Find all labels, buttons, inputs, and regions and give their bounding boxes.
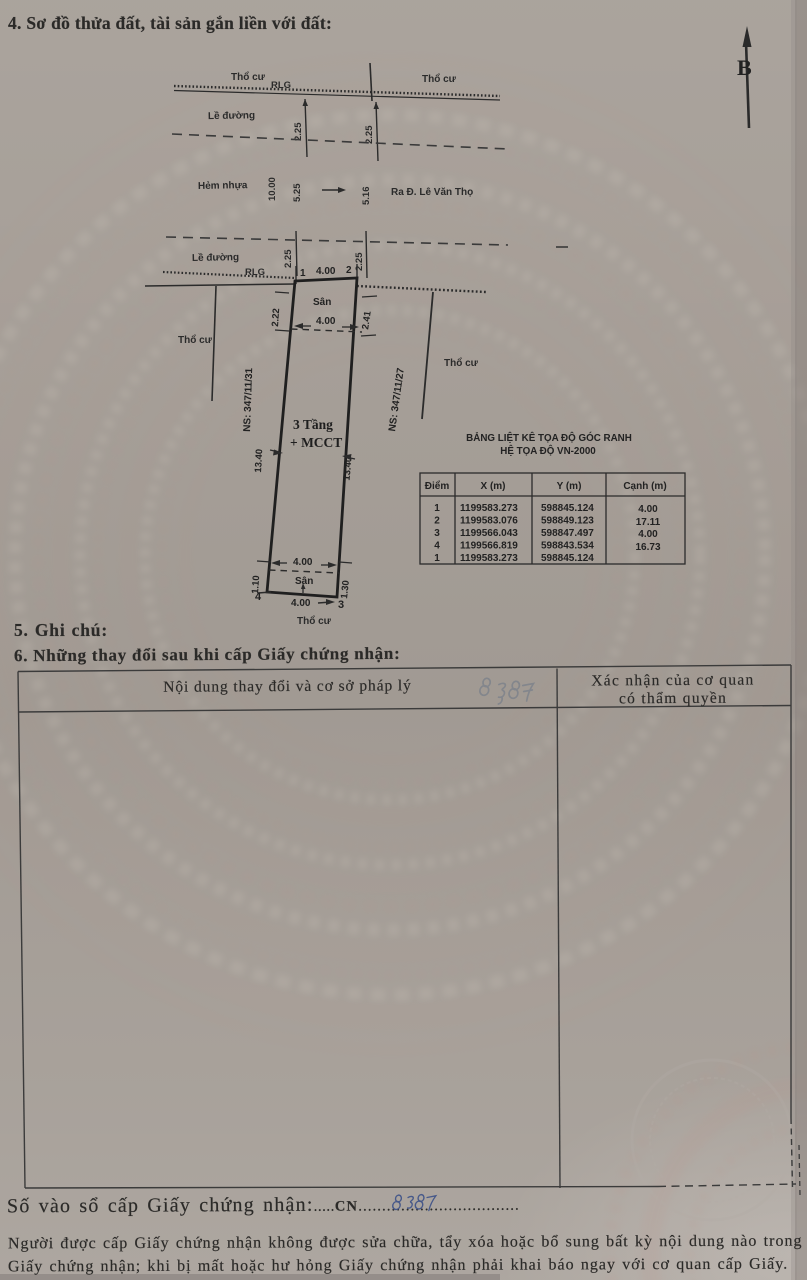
svg-text:2.41: 2.41 (360, 310, 374, 331)
svg-text:4: 4 (434, 541, 440, 552)
svg-text:2.25: 2.25 (364, 125, 375, 144)
svg-text:Thổ cư: Thổ cư (231, 71, 266, 83)
svg-text:1: 1 (300, 268, 306, 279)
svg-text:2: 2 (346, 265, 352, 276)
svg-text:Y (m): Y (m) (557, 481, 582, 492)
svg-text:1199583.273: 1199583.273 (460, 553, 518, 564)
svg-text:NS: 347/11/31: NS: 347/11/31 (242, 367, 255, 432)
svg-text:4.00: 4.00 (316, 266, 336, 277)
svg-text:4.00: 4.00 (638, 504, 658, 515)
svg-text:Thổ cư: Thổ cư (422, 73, 457, 85)
svg-text:598843.534: 598843.534 (541, 541, 594, 552)
svg-text:Lề đường: Lề đường (192, 251, 239, 264)
svg-text:17.11: 17.11 (636, 517, 661, 528)
svg-text:2.25: 2.25 (293, 122, 304, 141)
svg-text:Lề đường: Lề đường (208, 109, 255, 122)
svg-text:4: 4 (255, 591, 262, 603)
svg-text:Sân: Sân (295, 576, 313, 587)
svg-text:Hẻm nhựa: Hẻm nhựa (198, 180, 248, 192)
svg-text:4.00: 4.00 (638, 529, 658, 540)
svg-text:1199583.273: 1199583.273 (460, 503, 518, 514)
svg-text:Thổ cư: Thổ cư (178, 334, 213, 346)
svg-text:Thổ cư: Thổ cư (297, 615, 332, 627)
svg-text:RLG: RLG (271, 80, 291, 91)
svg-text:1199566.043: 1199566.043 (460, 528, 518, 539)
svg-text:3 Tầng: 3 Tầng (293, 417, 333, 432)
svg-text:3: 3 (434, 528, 440, 539)
svg-text:NS: 347/11/27: NS: 347/11/27 (387, 367, 407, 432)
svg-text:598845.124: 598845.124 (541, 553, 594, 564)
svg-text:1: 1 (434, 503, 440, 514)
svg-text:1199583.076: 1199583.076 (460, 516, 518, 527)
svg-text:2.25: 2.25 (283, 249, 294, 268)
svg-text:2: 2 (434, 516, 440, 527)
svg-text:BẢNG LIỆT KÊ TỌA ĐỘ GÓC RANH: BẢNG LIỆT KÊ TỌA ĐỘ GÓC RANH (466, 432, 632, 444)
svg-text:Thổ cư: Thổ cư (444, 357, 479, 369)
svg-text:1.30: 1.30 (339, 580, 352, 600)
svg-text:X (m): X (m) (481, 481, 506, 492)
svg-text:Cạnh (m): Cạnh (m) (623, 481, 666, 492)
svg-text:+ MCCT: + MCCT (290, 435, 342, 450)
svg-text:5.25: 5.25 (292, 183, 303, 202)
svg-text:Sân: Sân (313, 297, 331, 308)
svg-text:2.22: 2.22 (270, 308, 282, 327)
svg-text:1: 1 (434, 553, 440, 564)
svg-text:3: 3 (338, 599, 344, 611)
svg-text:5.16: 5.16 (361, 187, 372, 206)
svg-text:13.40: 13.40 (253, 449, 265, 473)
svg-text:598845.124: 598845.124 (541, 503, 594, 514)
svg-text:598847.497: 598847.497 (541, 528, 594, 539)
svg-text:Điểm: Điểm (425, 480, 450, 492)
svg-text:4.00: 4.00 (316, 316, 336, 327)
svg-text:4.00: 4.00 (291, 598, 311, 609)
svg-text:10.00: 10.00 (267, 177, 278, 201)
svg-text:4.00: 4.00 (293, 557, 313, 568)
svg-text:1199566.819: 1199566.819 (460, 541, 518, 552)
svg-text:Ra Đ. Lê Văn Thọ: Ra Đ. Lê Văn Thọ (391, 187, 473, 198)
svg-text:598849.123: 598849.123 (541, 516, 594, 527)
svg-text:13.40: 13.40 (342, 456, 355, 481)
svg-text:B: B (737, 55, 752, 80)
svg-text:2.25: 2.25 (354, 252, 365, 271)
svg-text:16.73: 16.73 (635, 542, 660, 553)
svg-text:HỆ TỌA ĐỘ VN-2000: HỆ TỌA ĐỘ VN-2000 (500, 445, 596, 457)
